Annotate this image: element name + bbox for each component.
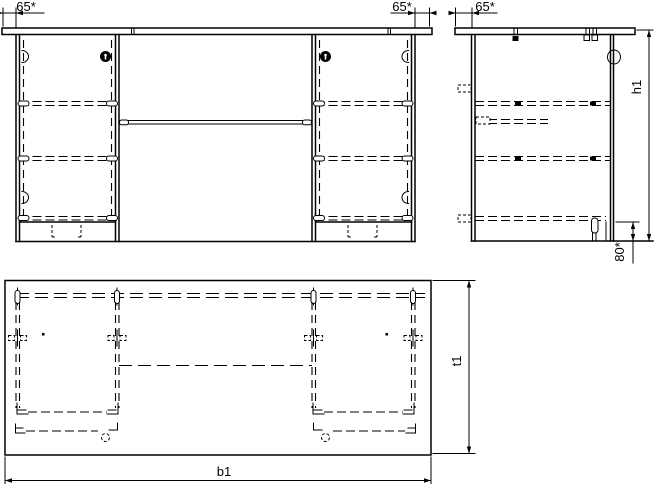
desk-three-view-drawing: 65* 65* <box>0 0 656 484</box>
lock-left-icon <box>100 51 111 62</box>
dim-label-h1: h1 <box>629 80 644 94</box>
dim-label-65-side: 65* <box>475 0 495 14</box>
dim-label-80: 80* <box>612 242 627 262</box>
dim-label-65-front-right: 65* <box>392 0 412 14</box>
technical-drawing-page: 65* 65* <box>0 0 656 484</box>
mark-dot-right <box>386 333 389 336</box>
dim-label-b1: b1 <box>217 464 231 479</box>
dim-label-t1: t1 <box>449 356 464 367</box>
door-lock-plan-right-icon <box>322 434 330 442</box>
door-lock-plan-left-icon <box>102 434 110 442</box>
dim-label-65-front-left: 65* <box>16 0 36 14</box>
lock-right-icon <box>320 51 331 62</box>
mark-dot-left <box>42 333 45 336</box>
